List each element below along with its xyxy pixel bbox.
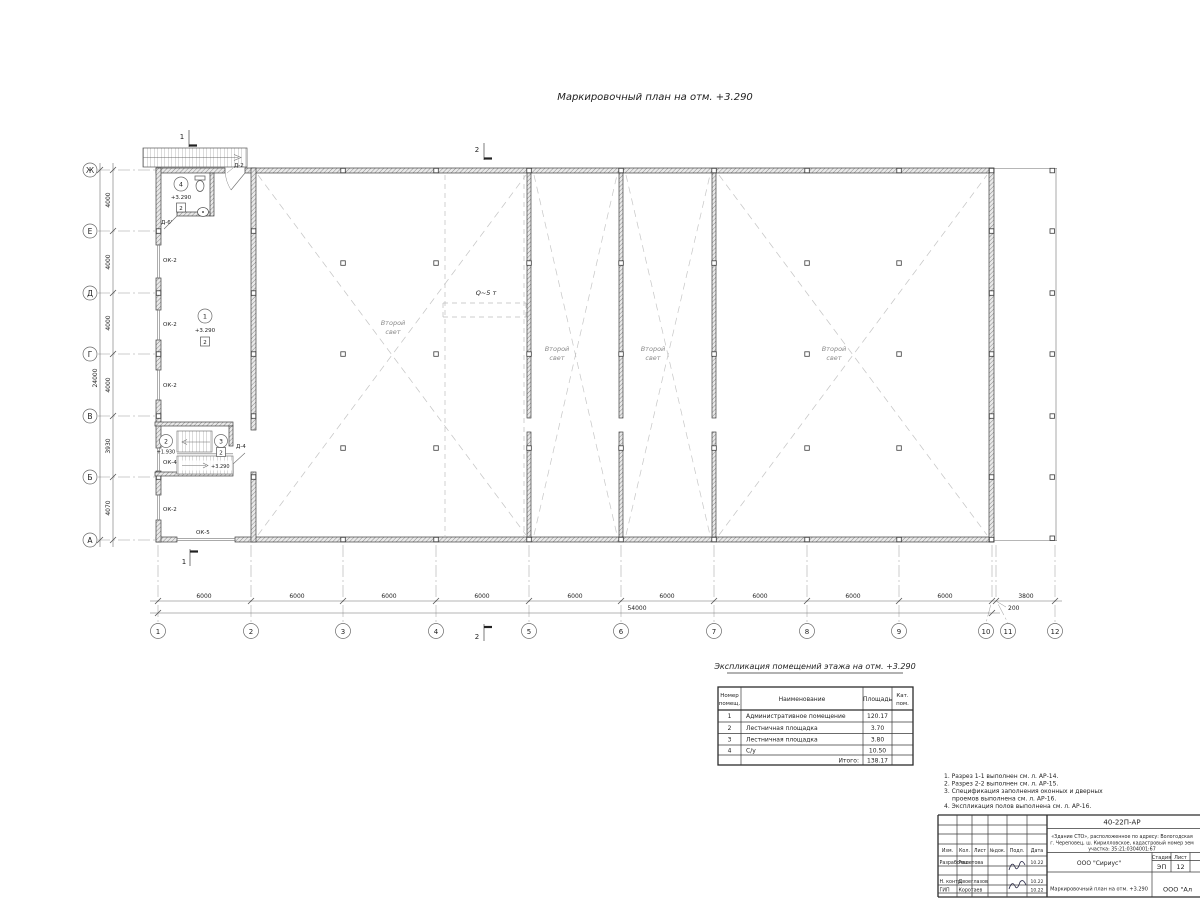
void-label: свет: [645, 354, 660, 362]
stamp-col: Подл.: [1010, 848, 1024, 854]
axis-row-label: Ж: [86, 166, 94, 175]
note-line: 3. Спецификация заполнения оконных и две…: [944, 788, 1103, 795]
stamp-project-line: участка: 35:21:0304001:67: [1088, 847, 1156, 853]
legend-table-title: Экспликация помещений этажа на отм. +3.2…: [713, 662, 915, 671]
stamp-col: Лист: [974, 848, 986, 854]
crane: Q~5 т: [443, 175, 526, 536]
axis-col-label: 9: [897, 628, 901, 636]
title-block: Изм. Кол. Лист №док. Подл. Дата Разработ…: [938, 815, 1200, 897]
crane-capacity-label: Q~5 т: [476, 289, 497, 297]
stamp-date: 10.22: [1031, 860, 1044, 866]
floor-type-mark: 2: [179, 206, 183, 212]
dim-label: 6000: [845, 593, 860, 600]
room-number: 2: [164, 439, 168, 446]
floor-type-mark: 2: [219, 450, 223, 456]
total-label: Итого:: [839, 758, 860, 765]
void-label: Второй: [545, 345, 570, 353]
stamp-drawing-title: Маркировочный план на отм. +3.290: [1050, 886, 1148, 893]
note-line: 1. Разрез 1-1 выполнен см. л. АР-14.: [944, 773, 1058, 780]
door-label: Д-6': [161, 220, 172, 226]
drawing-sheet: Маркировочный план на отм. +3.290 Ж Е Д …: [0, 0, 1200, 900]
dims-bottom: 6000 6000 6000 6000 6000 6000 6000 6000 …: [150, 593, 1062, 616]
dim-label: 6000: [937, 593, 952, 600]
axis-row-label: А: [87, 536, 93, 545]
dim-label: 4070: [105, 500, 112, 515]
axis-col-label: 12: [1051, 628, 1060, 636]
axis-row-lines: [98, 170, 156, 540]
cell-name: Административное помещение: [746, 713, 846, 720]
dim-total-label: 24000: [92, 368, 99, 387]
void-label: Второй: [641, 345, 666, 353]
table-row: 3 Лестничная площадка 3.80: [728, 737, 885, 744]
room-1-admin: 1 +3.290 2: [195, 309, 216, 346]
dim-label: 6000: [752, 593, 767, 600]
room-elevation: +1.930: [157, 450, 176, 456]
window-label: ОК-5: [196, 530, 210, 536]
table-row: 4 С/у 10.50: [728, 748, 887, 755]
dim-label: 6000: [289, 593, 304, 600]
dim-label: 4000: [105, 315, 112, 330]
stamp-role: ГИП: [940, 888, 951, 894]
room-number: 4: [179, 181, 183, 189]
col-header: помещ.: [719, 701, 741, 707]
walls: [156, 168, 1057, 542]
door-label: Д-4: [236, 444, 246, 450]
cell-num: 2: [728, 725, 732, 732]
stamp-name: Двоеглазов: [959, 879, 988, 885]
axis-col-lines: [158, 545, 1055, 623]
void-label: свет: [385, 328, 400, 336]
exterior-stair: [143, 148, 247, 167]
cell-num: 4: [728, 748, 732, 755]
dim-label: 4000: [105, 254, 112, 269]
cell-name: Лестничная площадка: [746, 737, 818, 744]
stamp-project-line: г. Череповец, ш. Кирилловское, кадастров…: [1050, 840, 1194, 847]
axis-col-label: 8: [805, 628, 809, 636]
legend-table: Экспликация помещений этажа на отм. +3.2…: [713, 662, 915, 765]
note-line: проемов выполнена см. л. АР-16.: [952, 796, 1056, 803]
stamp-org2: ООО "Ал: [1163, 886, 1192, 894]
dim-label: 6000: [567, 593, 582, 600]
section-mark-2-top: 2: [475, 146, 479, 154]
axis-row-label: Б: [87, 473, 92, 482]
plan-title: Маркировочный план на отм. +3.290: [557, 92, 753, 103]
col-header: Наименование: [779, 696, 826, 703]
table-row: 2 Лестничная площадка 3.70: [728, 725, 885, 732]
room-number: 1: [203, 313, 207, 321]
total-value: 138.17: [867, 758, 888, 765]
col-header: Кат.: [896, 693, 908, 699]
axis-col-label: 11: [1004, 628, 1013, 636]
stage-label: Стадия: [1152, 855, 1171, 861]
dim-label: 3930: [105, 438, 112, 453]
extension: [994, 168, 1057, 541]
void-label: свет: [549, 354, 564, 362]
room-elevation: +3.290: [171, 195, 192, 201]
void-label: Второй: [822, 345, 847, 353]
window-label: ОК-4: [163, 460, 177, 466]
stamp-org: ООО "Сириус": [1077, 860, 1121, 867]
window-label: ОК-2: [163, 383, 177, 389]
stamp-col: Изм.: [942, 848, 953, 854]
notes: 1. Разрез 1-1 выполнен см. л. АР-14. 2. …: [944, 773, 1103, 810]
room-4-wc: 4 +3.290 2 Д-6': [161, 173, 214, 229]
axis-cols: 6000 6000 6000 6000 6000 6000 6000 6000 …: [150, 545, 1063, 639]
stamp-name: Решетова: [959, 860, 984, 866]
section-mark-1-top: 1: [180, 133, 184, 141]
section-mark-1-bottom: 1: [182, 558, 186, 566]
axis-row-label: Е: [88, 227, 93, 236]
cell-name: С/у: [746, 748, 756, 755]
window-label: ОК-2: [163, 258, 177, 264]
window-labels: ОК-2 ОК-2 ОК-2 ОК-4 ОК-2 ОК-5: [163, 258, 210, 536]
dim-label: 4000: [105, 377, 112, 392]
stage-value: ЭП: [1157, 863, 1167, 871]
dim-total-label: 54000: [627, 605, 646, 612]
axis-col-label: 5: [527, 628, 531, 636]
col-header: пом.: [896, 701, 909, 707]
axis-col-label: 7: [712, 628, 716, 636]
stamp-name: Коротаев: [959, 888, 983, 894]
axis-row-label: В: [87, 412, 92, 421]
dim-label: 6000: [659, 593, 674, 600]
dim-label: 3800: [1018, 593, 1033, 600]
window-label: ОК-2: [163, 507, 177, 513]
stamp-project-line: «Здание СТО», расположенное по адресу: В…: [1051, 834, 1193, 840]
axis-col-label: 6: [619, 628, 624, 636]
cell-num: 3: [728, 737, 732, 744]
sheet-value: 12: [1176, 863, 1184, 871]
note-line: 2. Разрез 2-2 выполнен см. л. АР-15.: [944, 781, 1058, 788]
axis-row-label: Д: [87, 289, 93, 298]
door-label: Д-2: [234, 163, 244, 169]
axis-rows: Ж Е Д Г В Б А: [83, 163, 156, 547]
cell-area: 3.80: [871, 737, 885, 744]
axis-col-label: 10: [982, 628, 991, 636]
room-number: 3: [219, 439, 223, 446]
section-mark-2-bottom: 2: [475, 633, 479, 641]
stamp-col: Кол.: [959, 848, 970, 854]
sheet-label: Лист: [1174, 855, 1187, 861]
cell-area: 10.50: [869, 748, 886, 755]
stamp-col: №док.: [990, 848, 1006, 854]
dim-label: 200: [1008, 605, 1020, 612]
cell-name: Лестничная площадка: [746, 725, 818, 732]
toilet-icon: [195, 176, 205, 192]
axis-col-label: 3: [341, 628, 345, 636]
col-header: Площадь: [863, 696, 892, 703]
dim-label: 6000: [474, 593, 489, 600]
void-label: свет: [826, 354, 841, 362]
stair-elevation: +3.290: [211, 464, 230, 470]
stamp-date: 10.22: [1031, 879, 1044, 885]
col-header: Номер: [720, 693, 739, 699]
dim-label: 6000: [196, 593, 211, 600]
axis-col-label: 1: [156, 628, 160, 636]
stairwell: +3.290 2 +1.930 3 2 Д-4: [155, 422, 246, 476]
floor-type-mark: 2: [203, 340, 207, 346]
void-label: Второй: [381, 319, 406, 327]
axis-col-label: 4: [434, 628, 439, 636]
stamp-doc-number: 40-22П-АР: [1103, 819, 1140, 827]
table-row: 1 Административное помещение 120.17: [728, 713, 889, 720]
sink-icon: [198, 208, 209, 217]
room-elevation: +3.290: [195, 328, 216, 334]
dim-label: 4000: [105, 192, 112, 207]
window-label: ОК-2: [163, 322, 177, 328]
cell-area: 120.17: [867, 713, 888, 720]
note-line: 4. Экспликация полов выполнена см. л. АР…: [944, 803, 1091, 810]
axis-row-label: Г: [88, 350, 93, 359]
cell-num: 1: [728, 713, 732, 720]
floor-plan-svg: Маркировочный план на отм. +3.290 Ж Е Д …: [0, 0, 1200, 900]
axis-col-label: 2: [249, 628, 253, 636]
cell-area: 3.70: [871, 725, 885, 732]
stamp-col: Дата: [1031, 848, 1043, 854]
dim-label: 6000: [381, 593, 396, 600]
stamp-date: 10.22: [1031, 888, 1044, 894]
